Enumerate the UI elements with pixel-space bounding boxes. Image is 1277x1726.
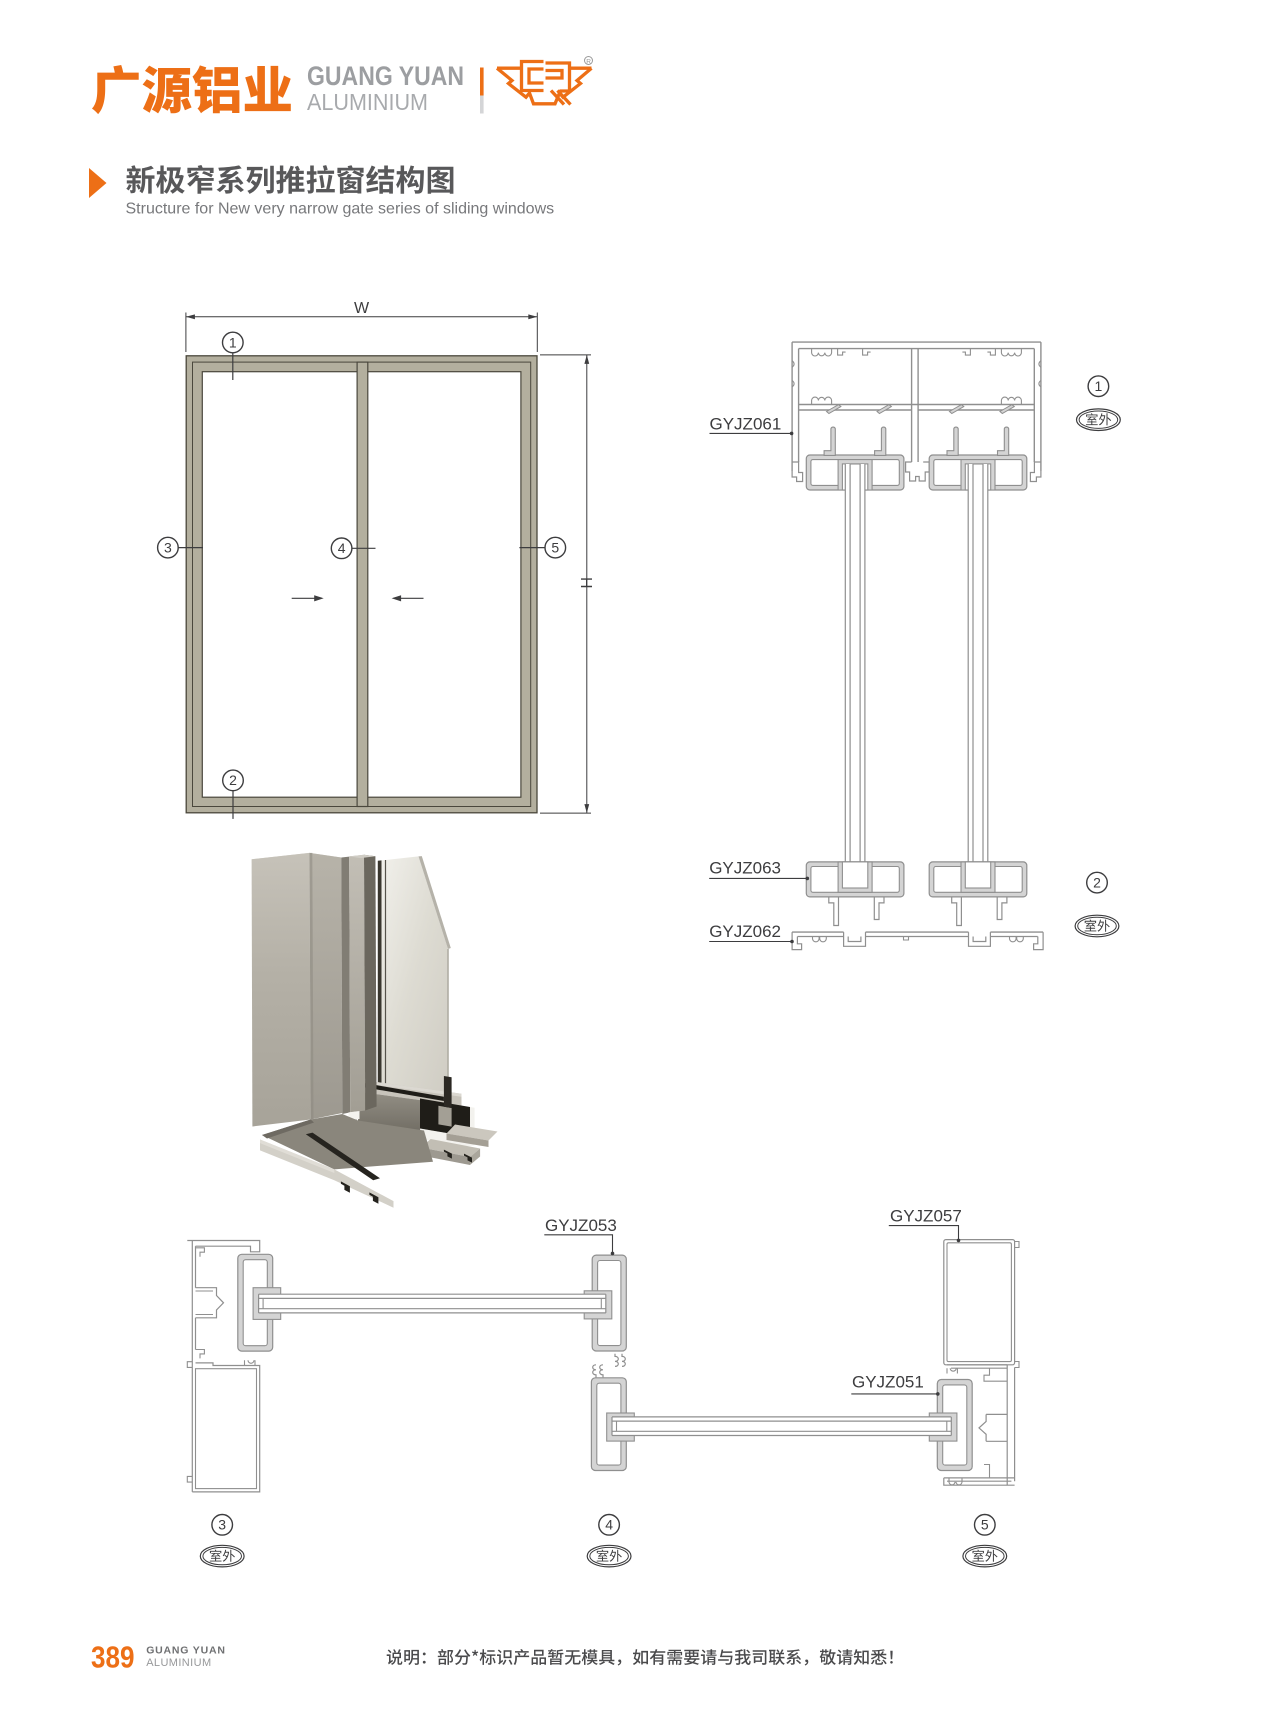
svg-text:W: W: [354, 300, 370, 317]
svg-text:Structure for New very narrow: Structure for New very narrow gate serie…: [126, 201, 555, 218]
svg-text:2: 2: [229, 772, 237, 788]
svg-text:5: 5: [981, 1517, 989, 1533]
svg-text:GYJZ053: GYJZ053: [545, 1216, 617, 1235]
svg-text:ALUMINIUM: ALUMINIUM: [146, 1657, 211, 1669]
svg-text:1: 1: [229, 334, 237, 350]
svg-text:389: 389: [91, 1640, 135, 1675]
svg-text:R: R: [586, 58, 591, 65]
svg-text:ALUMINIUM: ALUMINIUM: [307, 89, 428, 115]
svg-text:2: 2: [1093, 874, 1101, 890]
svg-text:3: 3: [218, 1517, 226, 1533]
svg-text:H: H: [577, 577, 594, 589]
svg-text:5: 5: [551, 539, 559, 555]
svg-text:4: 4: [605, 1517, 613, 1533]
svg-text:GUANG YUAN: GUANG YUAN: [146, 1645, 226, 1657]
svg-text:1: 1: [1095, 378, 1103, 394]
svg-text:4: 4: [338, 540, 346, 556]
svg-text:GYJZ061: GYJZ061: [710, 415, 782, 434]
svg-text:GUANG YUAN: GUANG YUAN: [307, 61, 464, 91]
svg-text:GYJZ057: GYJZ057: [890, 1207, 962, 1226]
svg-text:GYJZ051: GYJZ051: [852, 1373, 924, 1392]
svg-text:GYJZ062: GYJZ062: [709, 922, 781, 941]
svg-text:3: 3: [164, 539, 172, 555]
svg-text:GYJZ063: GYJZ063: [709, 859, 781, 878]
